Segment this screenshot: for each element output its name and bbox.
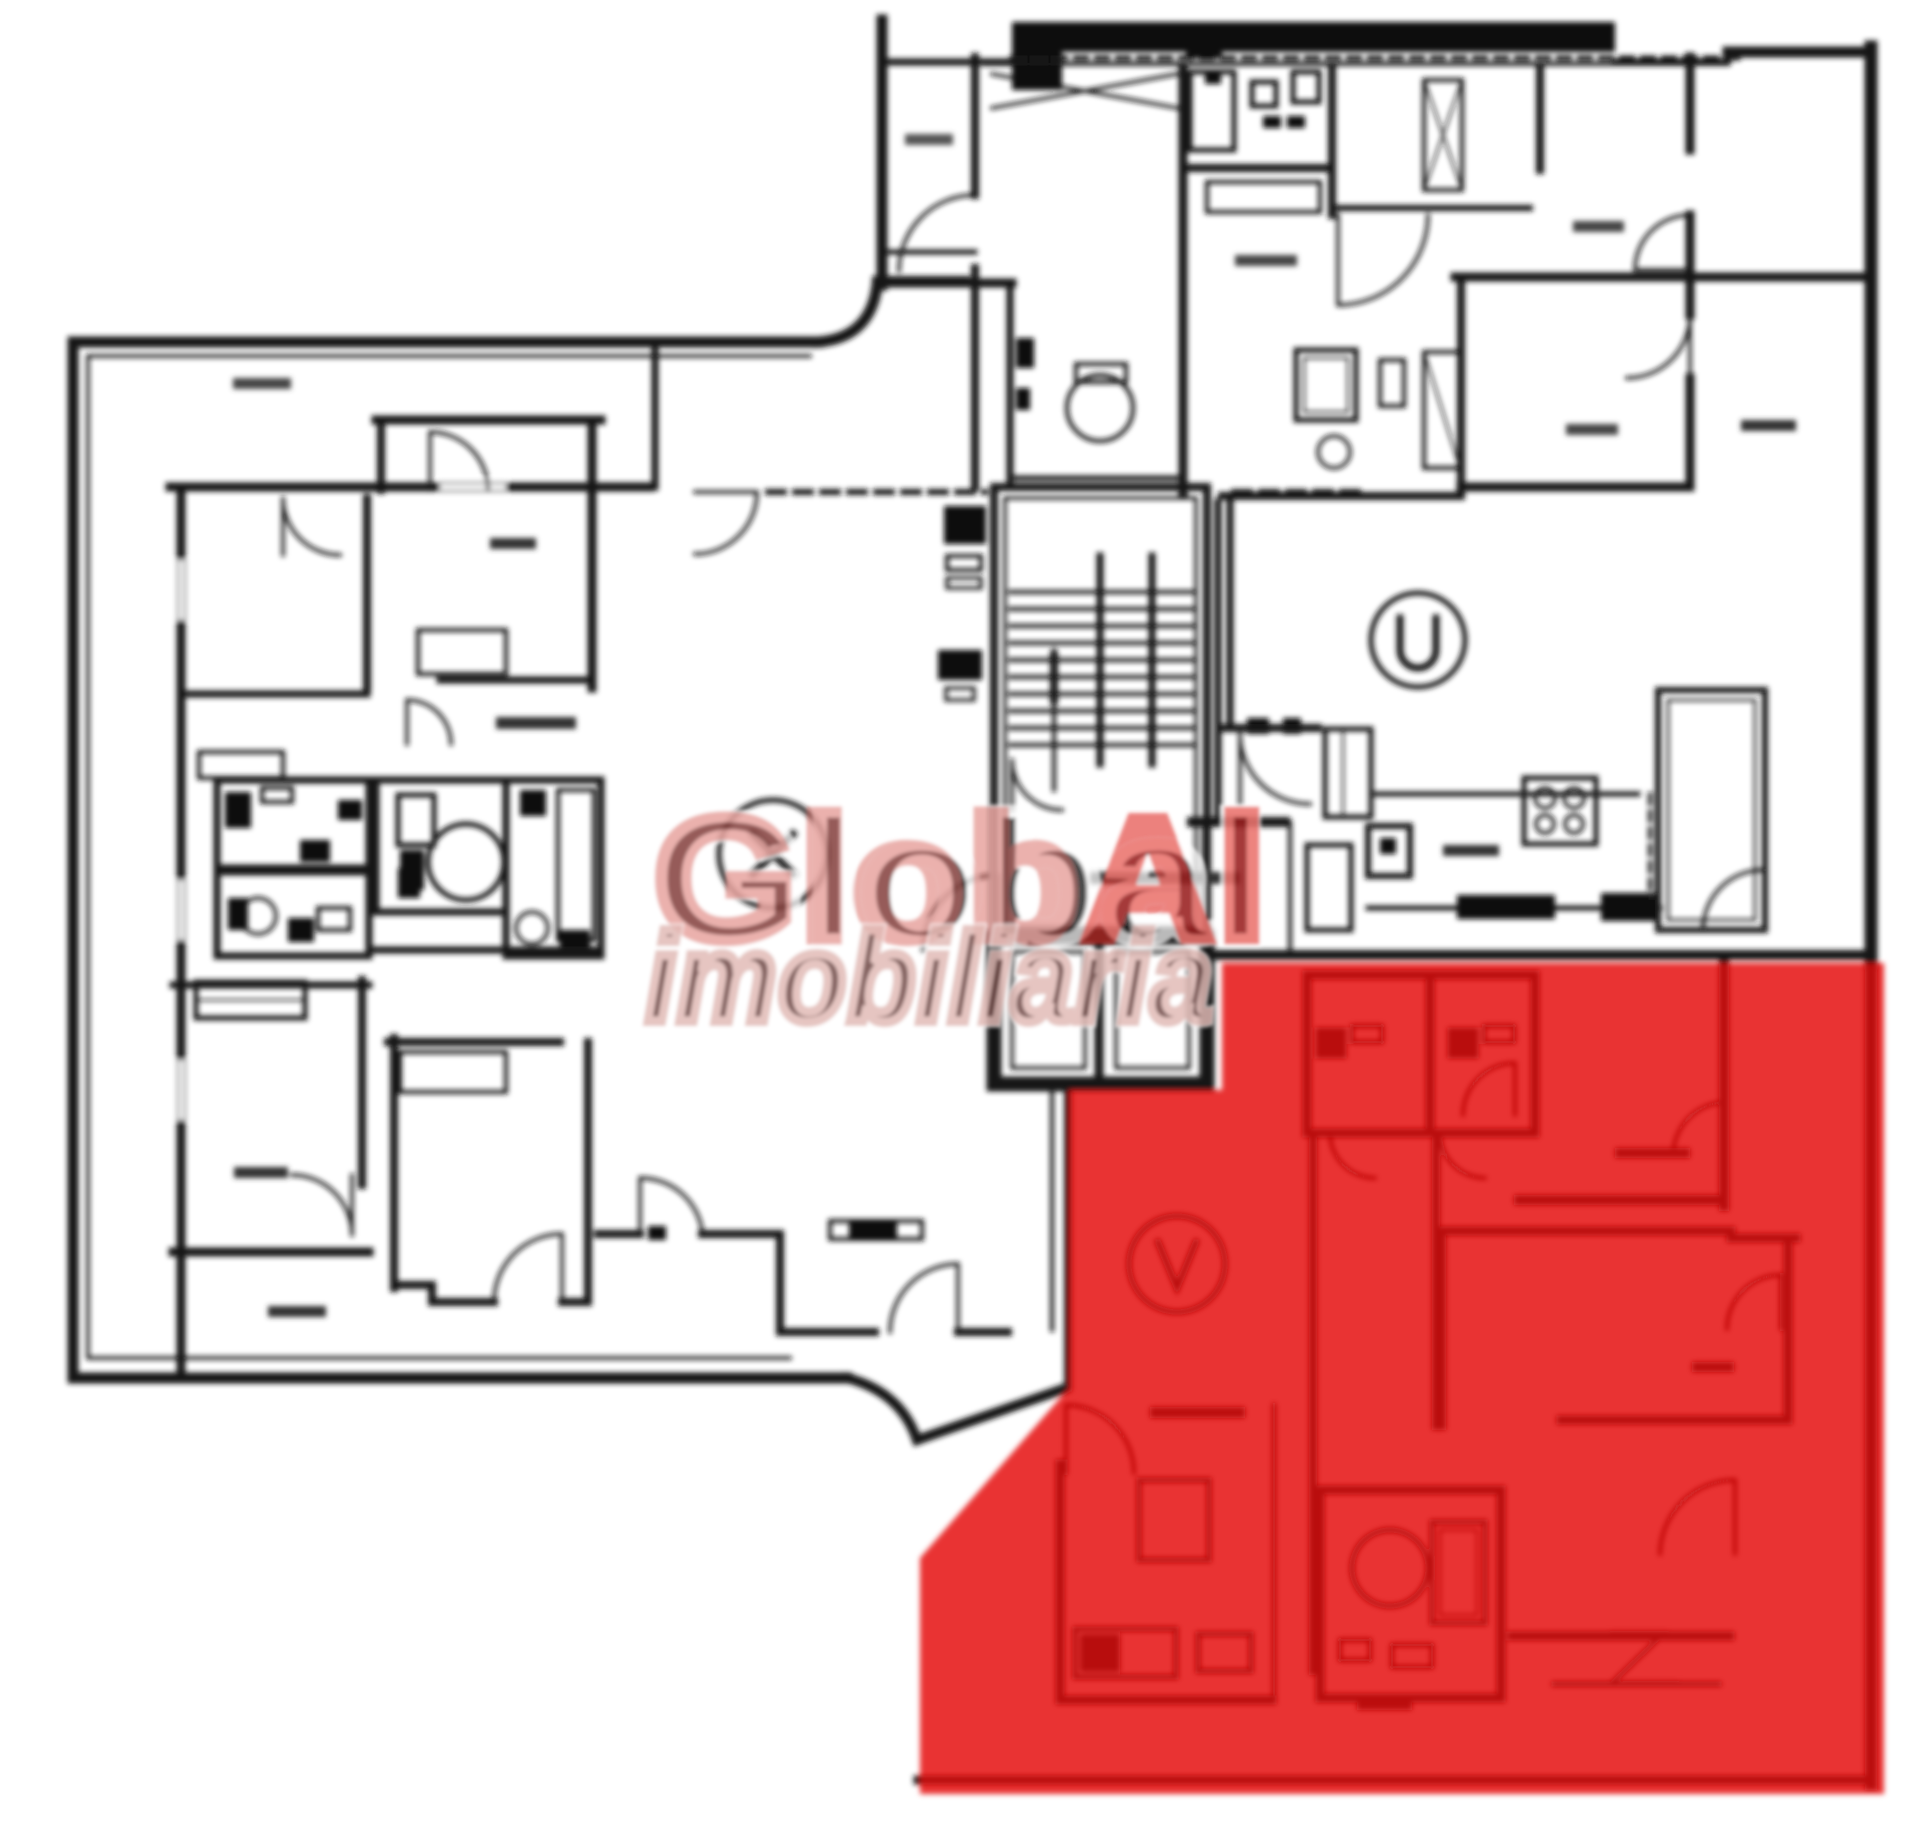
svg-text:imobiliaria: imobiliaria (645, 907, 1213, 1050)
